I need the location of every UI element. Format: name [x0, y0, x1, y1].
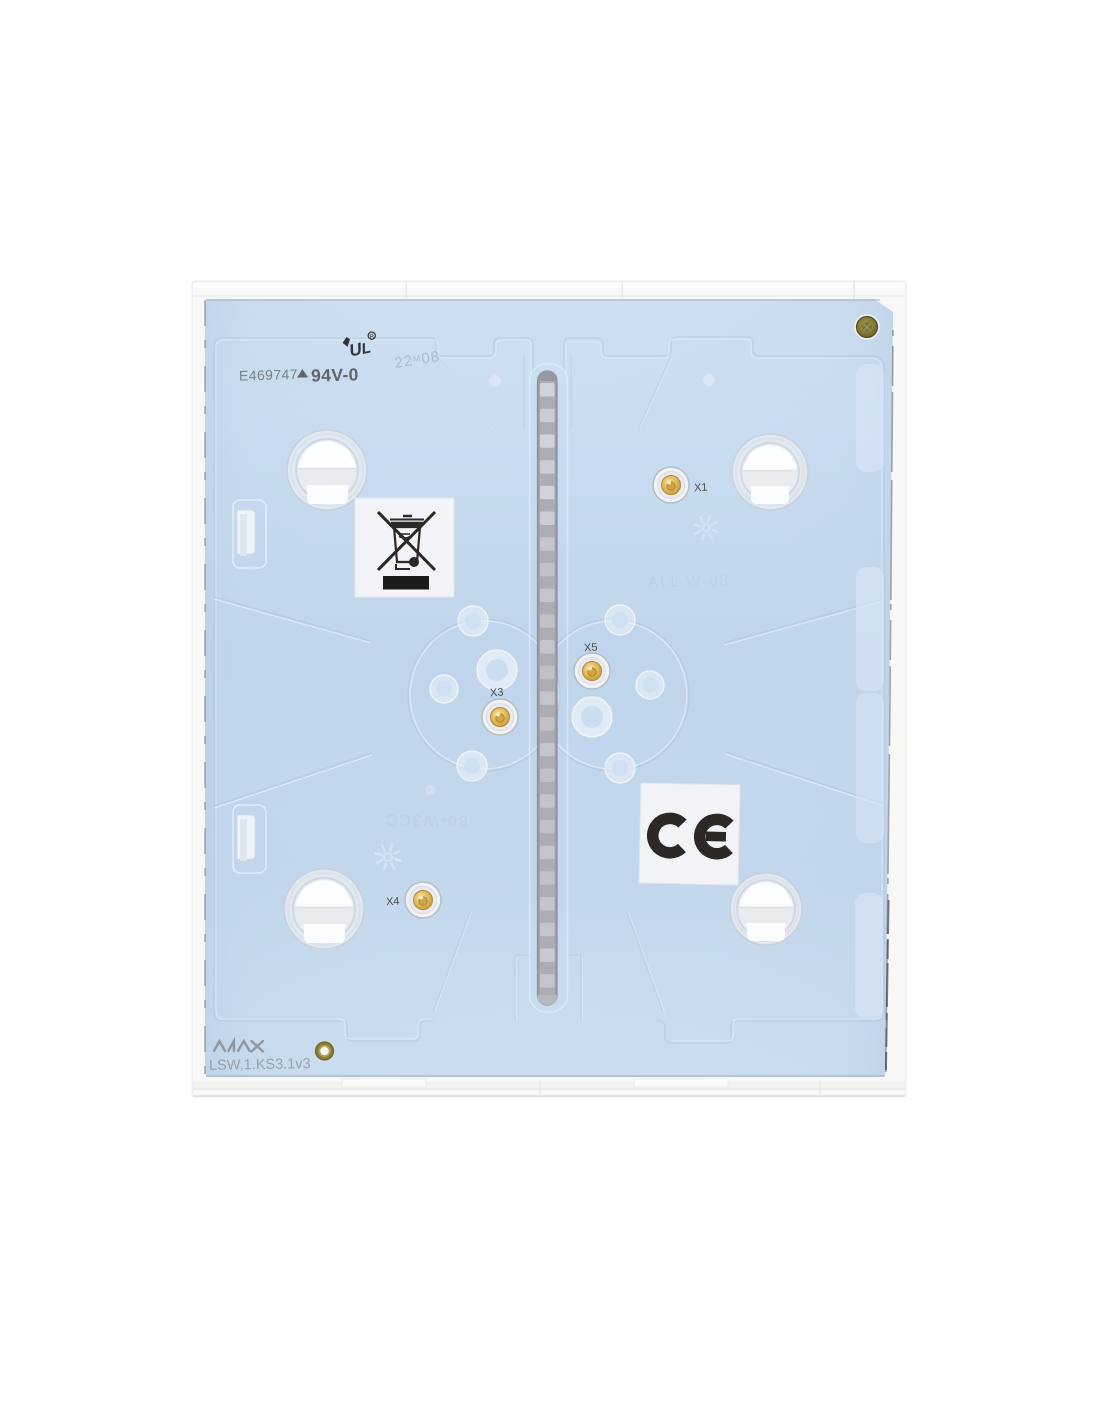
svg-text:E469747: E469747: [239, 366, 298, 384]
svg-text:X1: X1: [694, 482, 708, 495]
svg-text:X3: X3: [490, 686, 504, 699]
svg-text:94V-0: 94V-0: [311, 364, 359, 385]
svg-text:X4: X4: [386, 896, 400, 909]
svg-text:ALL W-08: ALL W-08: [648, 572, 730, 590]
svg-text:X5: X5: [584, 641, 598, 654]
svg-text:LSW.1.KS3.1v3: LSW.1.KS3.1v3: [209, 1056, 311, 1074]
svg-text:80-W3CC: 80-W3CC: [384, 811, 469, 829]
